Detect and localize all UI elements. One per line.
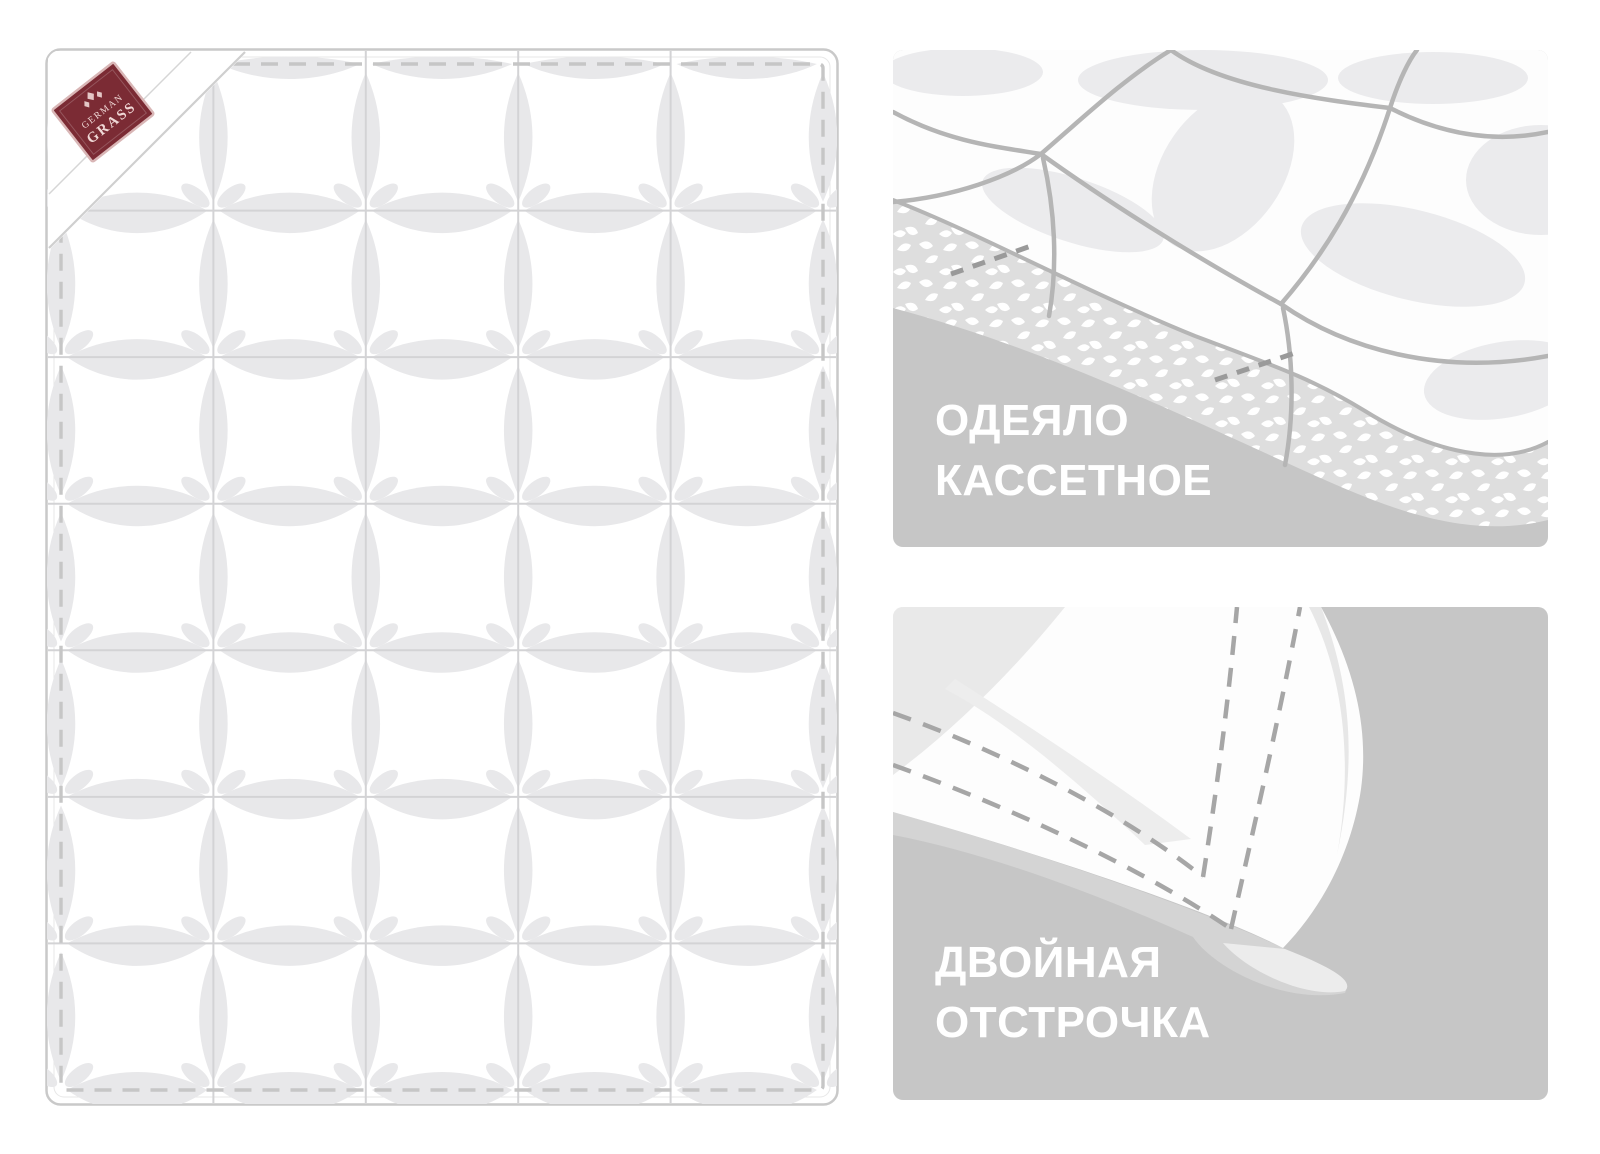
caption-line: ДВОЙНАЯ	[935, 933, 1211, 993]
panel-cassette: ОДЕЯЛО КАССЕТНОЕ	[893, 50, 1548, 547]
caption-cassette: ОДЕЯЛО КАССЕТНОЕ	[935, 391, 1212, 511]
caption-stitching: ДВОЙНАЯ ОТСТРОЧКА	[935, 933, 1211, 1053]
caption-line: ОДЕЯЛО	[935, 391, 1212, 451]
product-illustration: GERMANGRASS	[0, 0, 1600, 1154]
quilt-illustration: GERMANGRASS	[45, 48, 839, 1106]
panel-stitching: ДВОЙНАЯ ОТСТРОЧКА	[893, 607, 1548, 1100]
caption-line: КАССЕТНОЕ	[935, 451, 1212, 511]
caption-line: ОТСТРОЧКА	[935, 993, 1211, 1053]
